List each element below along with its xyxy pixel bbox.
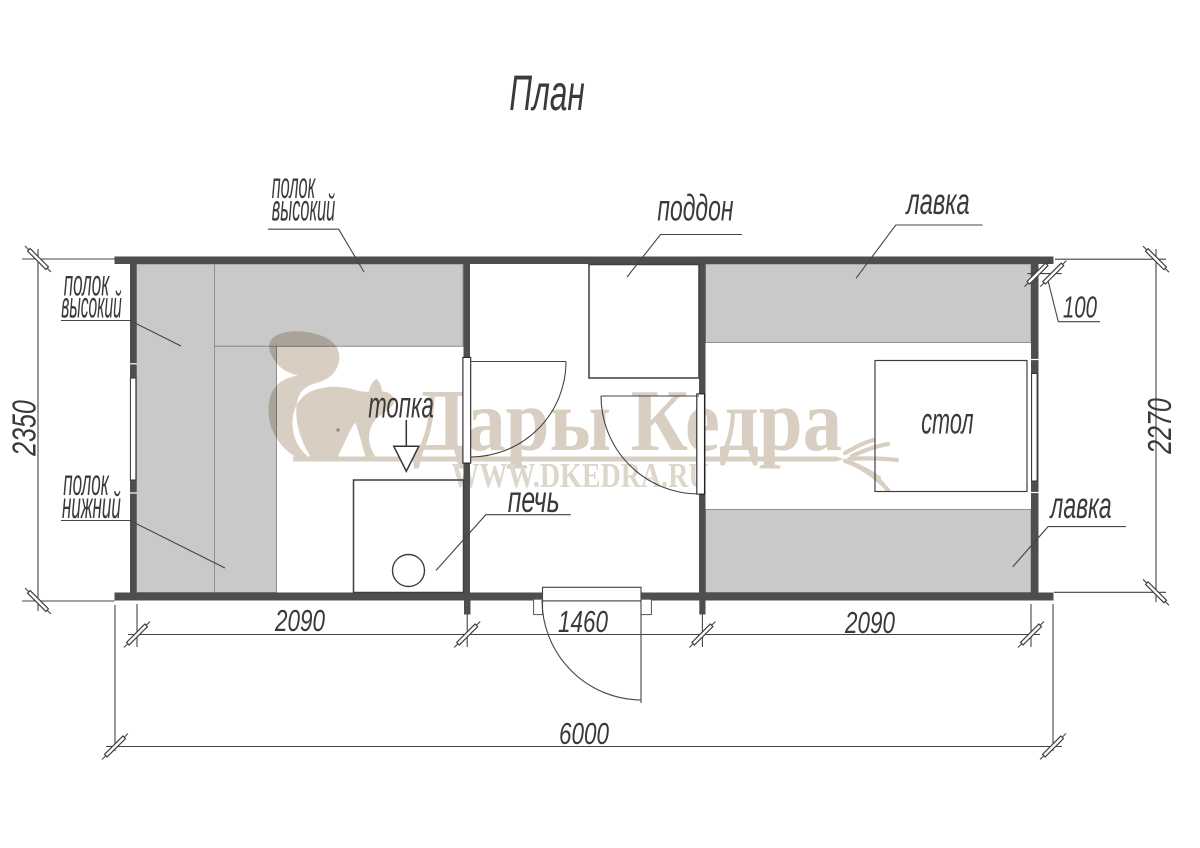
svg-text:печь: печь (508, 478, 560, 520)
svg-text:топка: топка (368, 385, 434, 426)
svg-text:лавка: лавка (1049, 484, 1112, 526)
svg-text:WWW.DKEDRA.RU: WWW.DKEDRA.RU (451, 456, 708, 495)
svg-text:стол: стол (921, 402, 973, 442)
svg-text:лавка: лавка (905, 181, 970, 223)
svg-text:поддон: поддон (657, 187, 733, 229)
svg-text:100: 100 (1063, 289, 1097, 324)
svg-text:План: План (509, 65, 584, 121)
svg-text:1460: 1460 (558, 603, 608, 638)
svg-text:нижний: нижний (62, 486, 121, 527)
svg-text:2270: 2270 (1142, 398, 1179, 455)
svg-text:2350: 2350 (6, 400, 43, 457)
svg-text:2090: 2090 (274, 602, 325, 637)
svg-text:2090: 2090 (844, 604, 895, 639)
svg-text:6000: 6000 (559, 715, 609, 750)
svg-text:высокий: высокий (61, 285, 122, 327)
svg-text:высокий: высокий (272, 188, 336, 229)
